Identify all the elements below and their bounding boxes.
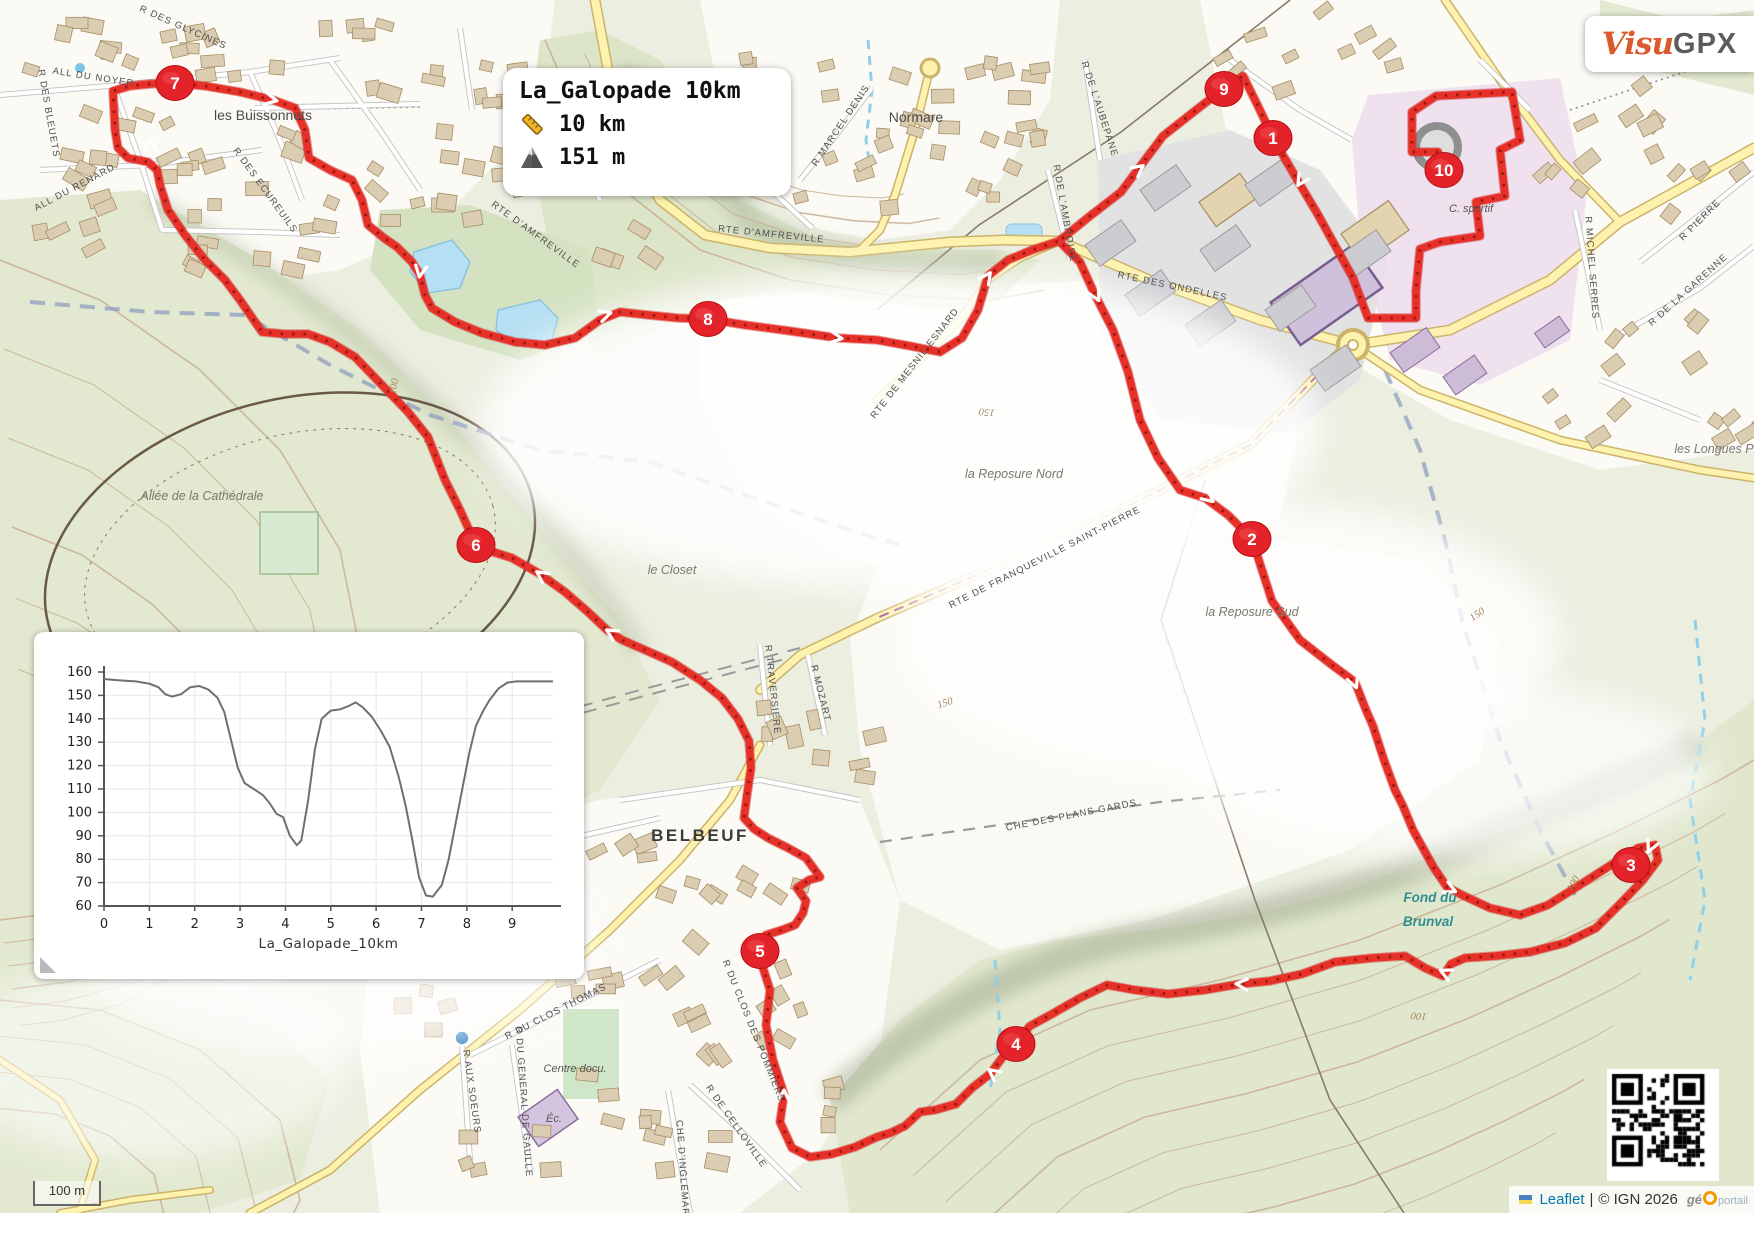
ukraine-flag-icon — [1519, 1195, 1532, 1204]
map-label: Allée de la Cathédrale — [140, 489, 264, 503]
svg-text:80: 80 — [75, 852, 92, 867]
km-marker-4[interactable]: 4 — [997, 1027, 1035, 1062]
logo-gpx-text: GPX — [1673, 28, 1737, 61]
route-title: La_Galopade 10km — [519, 78, 777, 104]
chart-title: La_Galopade_10km — [259, 936, 399, 952]
leaflet-link[interactable]: Leaflet — [1539, 1191, 1584, 1208]
map-label: Centre docu. — [544, 1063, 607, 1075]
svg-text:7: 7 — [170, 74, 179, 93]
map-label: les Longues P — [1674, 442, 1754, 456]
map-label: 100 — [1410, 1009, 1427, 1021]
svg-text:3: 3 — [1626, 856, 1635, 875]
geoportail-logo: gé — [1687, 1192, 1702, 1207]
attribution-bar: Leaflet | © IGN 2026 géportail — [1509, 1186, 1754, 1213]
svg-text:1: 1 — [1268, 129, 1277, 148]
svg-text:7: 7 — [417, 917, 425, 932]
km-marker-3[interactable]: 3 — [1612, 848, 1650, 883]
map-label: Brunval — [1403, 914, 1454, 929]
qr-code — [1607, 1069, 1719, 1181]
svg-text:70: 70 — [75, 876, 92, 891]
svg-text:150: 150 — [67, 688, 92, 703]
ruler-icon — [519, 111, 545, 137]
ign-copyright: © IGN 2026 — [1598, 1191, 1677, 1208]
svg-text:2: 2 — [1247, 530, 1256, 549]
map-canvas[interactable]: BELBEUFNormareles Buissonnetsla Reposure… — [0, 0, 1754, 1241]
scale-bar: 100 m — [33, 1181, 101, 1206]
km-marker-6[interactable]: 6 — [457, 528, 495, 563]
svg-text:10: 10 — [1435, 161, 1454, 180]
km-marker-9[interactable]: 9 — [1205, 72, 1243, 107]
svg-text:3: 3 — [236, 917, 244, 932]
km-marker-1[interactable]: 1 — [1254, 121, 1292, 156]
map-label: Normare — [889, 109, 944, 125]
svg-text:140: 140 — [67, 712, 92, 727]
map-label: 150 — [978, 405, 995, 417]
map-label: le Closet — [648, 563, 697, 577]
visugpx-map-page: BELBEUFNormareles Buissonnetsla Reposure… — [0, 0, 1754, 1241]
svg-text:90: 90 — [75, 829, 92, 844]
svg-text:130: 130 — [67, 735, 92, 750]
route-info-box: La_Galopade 10km 10 km 151 m — [503, 68, 791, 196]
svg-text:5: 5 — [755, 942, 764, 961]
svg-text:4: 4 — [281, 917, 289, 932]
elevation-chart-panel: 607080901001101201301401501600123456789L… — [34, 632, 584, 979]
route-elevation-gain: 151 m — [559, 145, 625, 170]
svg-text:5: 5 — [327, 917, 335, 932]
km-marker-2[interactable]: 2 — [1233, 522, 1271, 557]
svg-text:100: 100 — [67, 805, 92, 820]
svg-text:110: 110 — [67, 782, 92, 797]
map-label: les Buissonnets — [214, 107, 312, 123]
svg-text:6: 6 — [372, 917, 380, 932]
svg-text:160: 160 — [67, 665, 92, 680]
geoportail-o-icon — [1703, 1191, 1717, 1205]
km-marker-10[interactable]: 10 — [1425, 153, 1463, 188]
logo-visu-text: Visu — [1602, 26, 1673, 62]
map-label: la Reposure Nord — [965, 467, 1064, 481]
map-label: la Reposure Sud — [1205, 605, 1299, 619]
page-bottom-margin — [0, 1213, 1754, 1241]
svg-text:60: 60 — [75, 899, 92, 914]
attribution-separator: | — [1590, 1191, 1594, 1208]
km-marker-5[interactable]: 5 — [741, 934, 779, 969]
map-label: Éc. — [546, 1112, 562, 1125]
svg-text:9: 9 — [508, 917, 516, 932]
svg-text:1: 1 — [145, 917, 153, 932]
elevation-chart: 607080901001101201301401501600123456789L… — [34, 632, 584, 979]
map-label: C. sportif — [1449, 203, 1494, 215]
svg-text:120: 120 — [67, 759, 92, 774]
svg-text:9: 9 — [1219, 80, 1228, 99]
route-distance: 10 km — [559, 112, 625, 137]
mountain-icon — [519, 144, 545, 170]
svg-text:8: 8 — [463, 917, 471, 932]
svg-text:0: 0 — [100, 917, 108, 932]
km-marker-8[interactable]: 8 — [689, 302, 727, 337]
chart-resize-handle[interactable] — [40, 957, 56, 973]
svg-text:2: 2 — [191, 917, 199, 932]
svg-text:8: 8 — [703, 310, 712, 329]
visugpx-logo[interactable]: VisuGPX — [1585, 16, 1754, 72]
svg-text:4: 4 — [1011, 1035, 1021, 1054]
svg-text:6: 6 — [471, 536, 480, 555]
km-marker-7[interactable]: 7 — [156, 66, 194, 101]
map-label: Fond du — [1403, 890, 1457, 905]
map-label: BELBEUF — [651, 826, 749, 845]
